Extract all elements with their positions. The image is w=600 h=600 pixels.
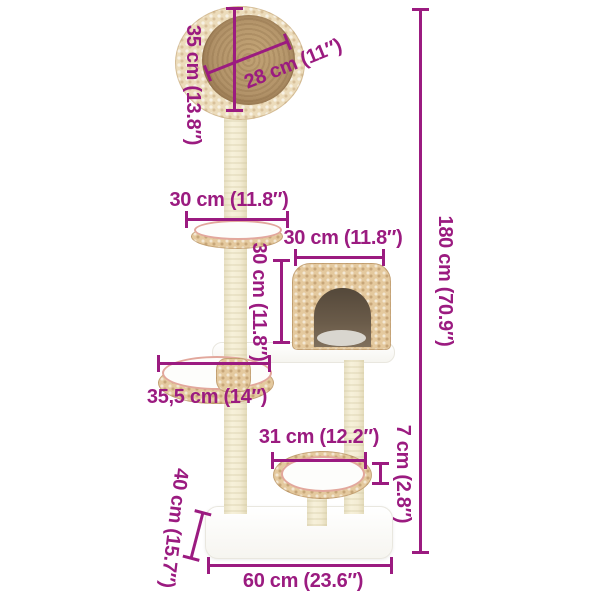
upper-platform-cushion [194, 220, 282, 240]
condo-cushion [317, 330, 366, 346]
dim-label-total-height: 180 cm (70.9″) [435, 215, 455, 346]
dim-label-base-depth: 40 cm (15.7″) [157, 467, 192, 589]
dim-line-base-depth [189, 512, 204, 559]
dim-line-lower-basket-width [272, 459, 366, 462]
dim-label-condo-width: 30 cm (11.8″) [283, 228, 402, 248]
main-scratching-post [224, 108, 247, 514]
dim-line-total-height [419, 9, 422, 553]
dim-line-condo-width [295, 256, 384, 259]
dim-label-base-width: 60 cm (23.6″) [243, 571, 363, 591]
dim-label-lower-basket-width: 31 cm (12.2″) [259, 427, 379, 447]
dim-label-condo-height: 30 cm (11.8″) [249, 242, 269, 361]
dim-label-upper-platform-width: 30 cm (11.8″) [169, 190, 288, 210]
dim-label-lower-basket-rim-height: 7 cm (2.8″) [393, 425, 413, 524]
dim-line-condo-height [280, 260, 283, 343]
cat-tree-dimension-diagram: 35 cm (13.8″) 28 cm (11″) 30 cm (11.8″) … [0, 0, 600, 600]
dim-line-lower-basket-rim-height [379, 463, 382, 484]
dim-line-upper-platform-width [186, 218, 288, 221]
dim-line-middle-platform-width [158, 362, 270, 365]
dim-label-middle-platform-width: 35,5 cm (14″) [147, 387, 267, 407]
dim-label-top-basket-height: 35 cm (13.8″) [183, 25, 203, 145]
dim-line-base-width [208, 564, 392, 567]
